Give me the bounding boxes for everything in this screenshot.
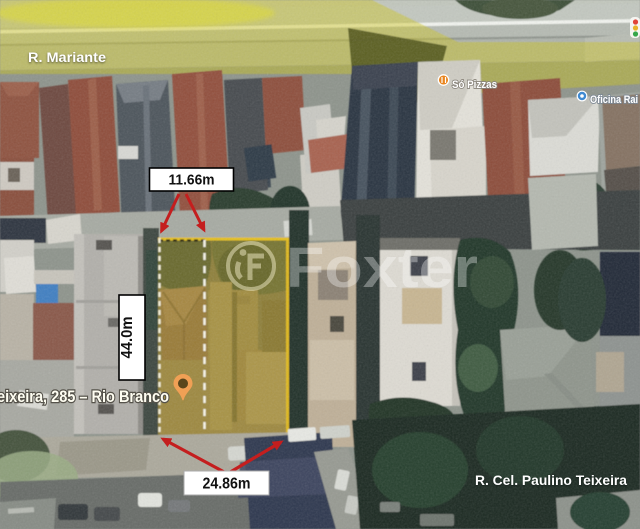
svg-text:Foxter: Foxter [286, 236, 478, 300]
svg-text:eixeira, 285 – Rio Branco: eixeira, 285 – Rio Branco [0, 387, 169, 406]
svg-text:Oficina Rai: Oficina Rai [590, 94, 638, 106]
svg-text:24.86m: 24.86m [203, 476, 251, 493]
svg-text:R. Mariante: R. Mariante [28, 50, 107, 65]
svg-text:44.0m: 44.0m [119, 317, 136, 359]
svg-text:R. Cel. Paulino Teixeira: R. Cel. Paulino Teixeira [475, 472, 627, 488]
svg-text:Só Pizzas: Só Pizzas [452, 79, 497, 91]
svg-text:11.66m: 11.66m [169, 172, 215, 189]
